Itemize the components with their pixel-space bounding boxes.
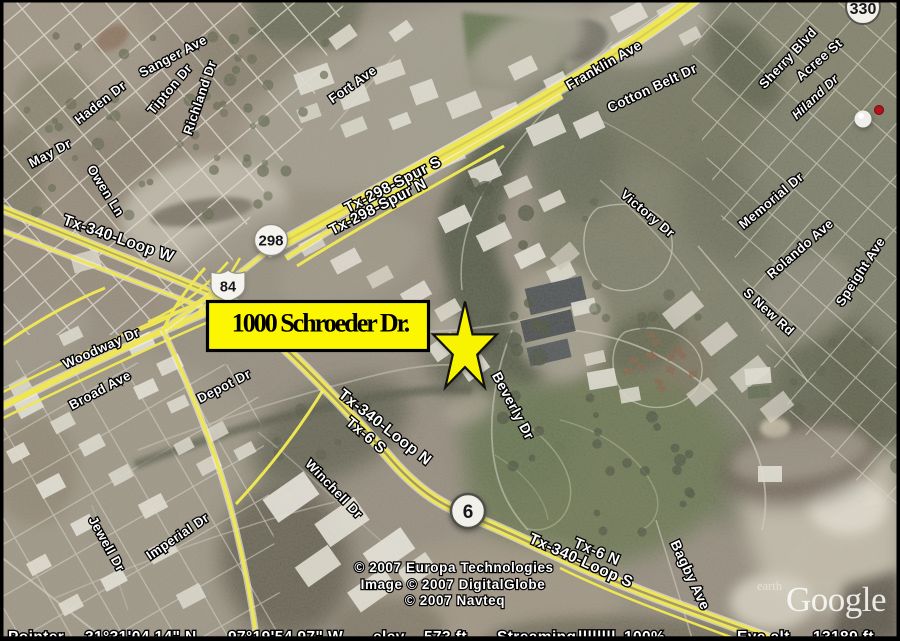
svg-text:© 2007 Navteq: © 2007 Navteq [405,593,505,608]
svg-text:earth: earth [757,579,783,593]
svg-text:1000 Schroeder Dr.: 1000 Schroeder Dr. [232,309,410,338]
svg-text:84: 84 [220,280,236,296]
svg-text:298: 298 [258,233,283,250]
svg-text:Google: Google [786,580,886,619]
svg-text:© 2007 Europa Technologies: © 2007 Europa Technologies [354,560,553,575]
svg-text:6: 6 [463,502,474,523]
svg-text:Image © 2007 DigitalGlobe: Image © 2007 DigitalGlobe [361,577,546,592]
svg-text:330: 330 [850,1,877,18]
